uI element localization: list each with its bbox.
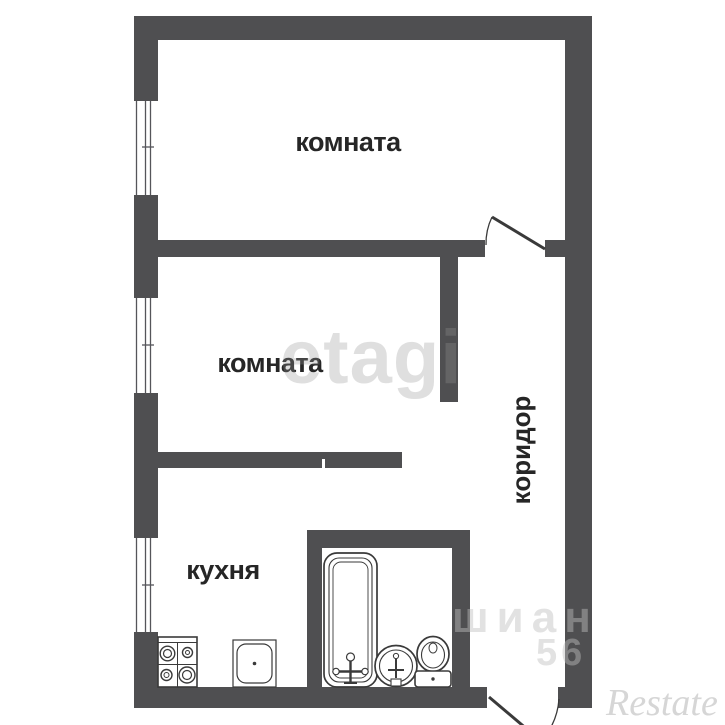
plan-graphics: [0, 0, 725, 725]
stove-icon: [158, 637, 197, 687]
washbasin-icon: [375, 646, 417, 687]
door-entry-icon: [489, 697, 559, 725]
bathtub-icon: [324, 553, 377, 687]
window-icon: [137, 101, 155, 632]
door-top-icon: [486, 217, 545, 249]
kitchen-sink-icon: [233, 640, 276, 687]
toilet-icon: [415, 637, 451, 688]
floor-plan: комната комната кухня коридор: [0, 0, 725, 725]
